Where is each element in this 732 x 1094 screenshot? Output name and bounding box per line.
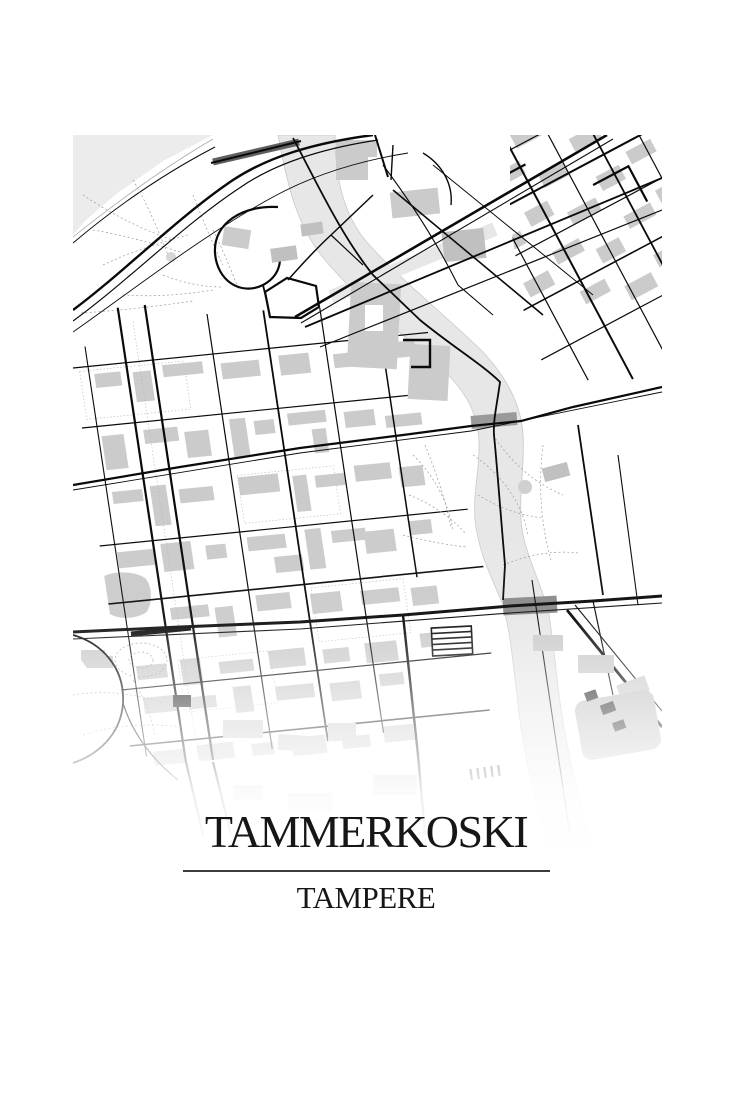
title-block: TAMMERKOSKI TAMPERE <box>0 809 732 913</box>
city-map <box>73 135 662 862</box>
title-divider <box>183 870 550 872</box>
park-northwest <box>81 180 280 318</box>
lake-area <box>73 135 215 243</box>
poster-subtitle: TAMPERE <box>0 882 732 913</box>
map-poster <box>73 135 662 862</box>
poster-title: TAMMERKOSKI <box>0 809 732 855</box>
walled-block-outline <box>265 278 319 318</box>
